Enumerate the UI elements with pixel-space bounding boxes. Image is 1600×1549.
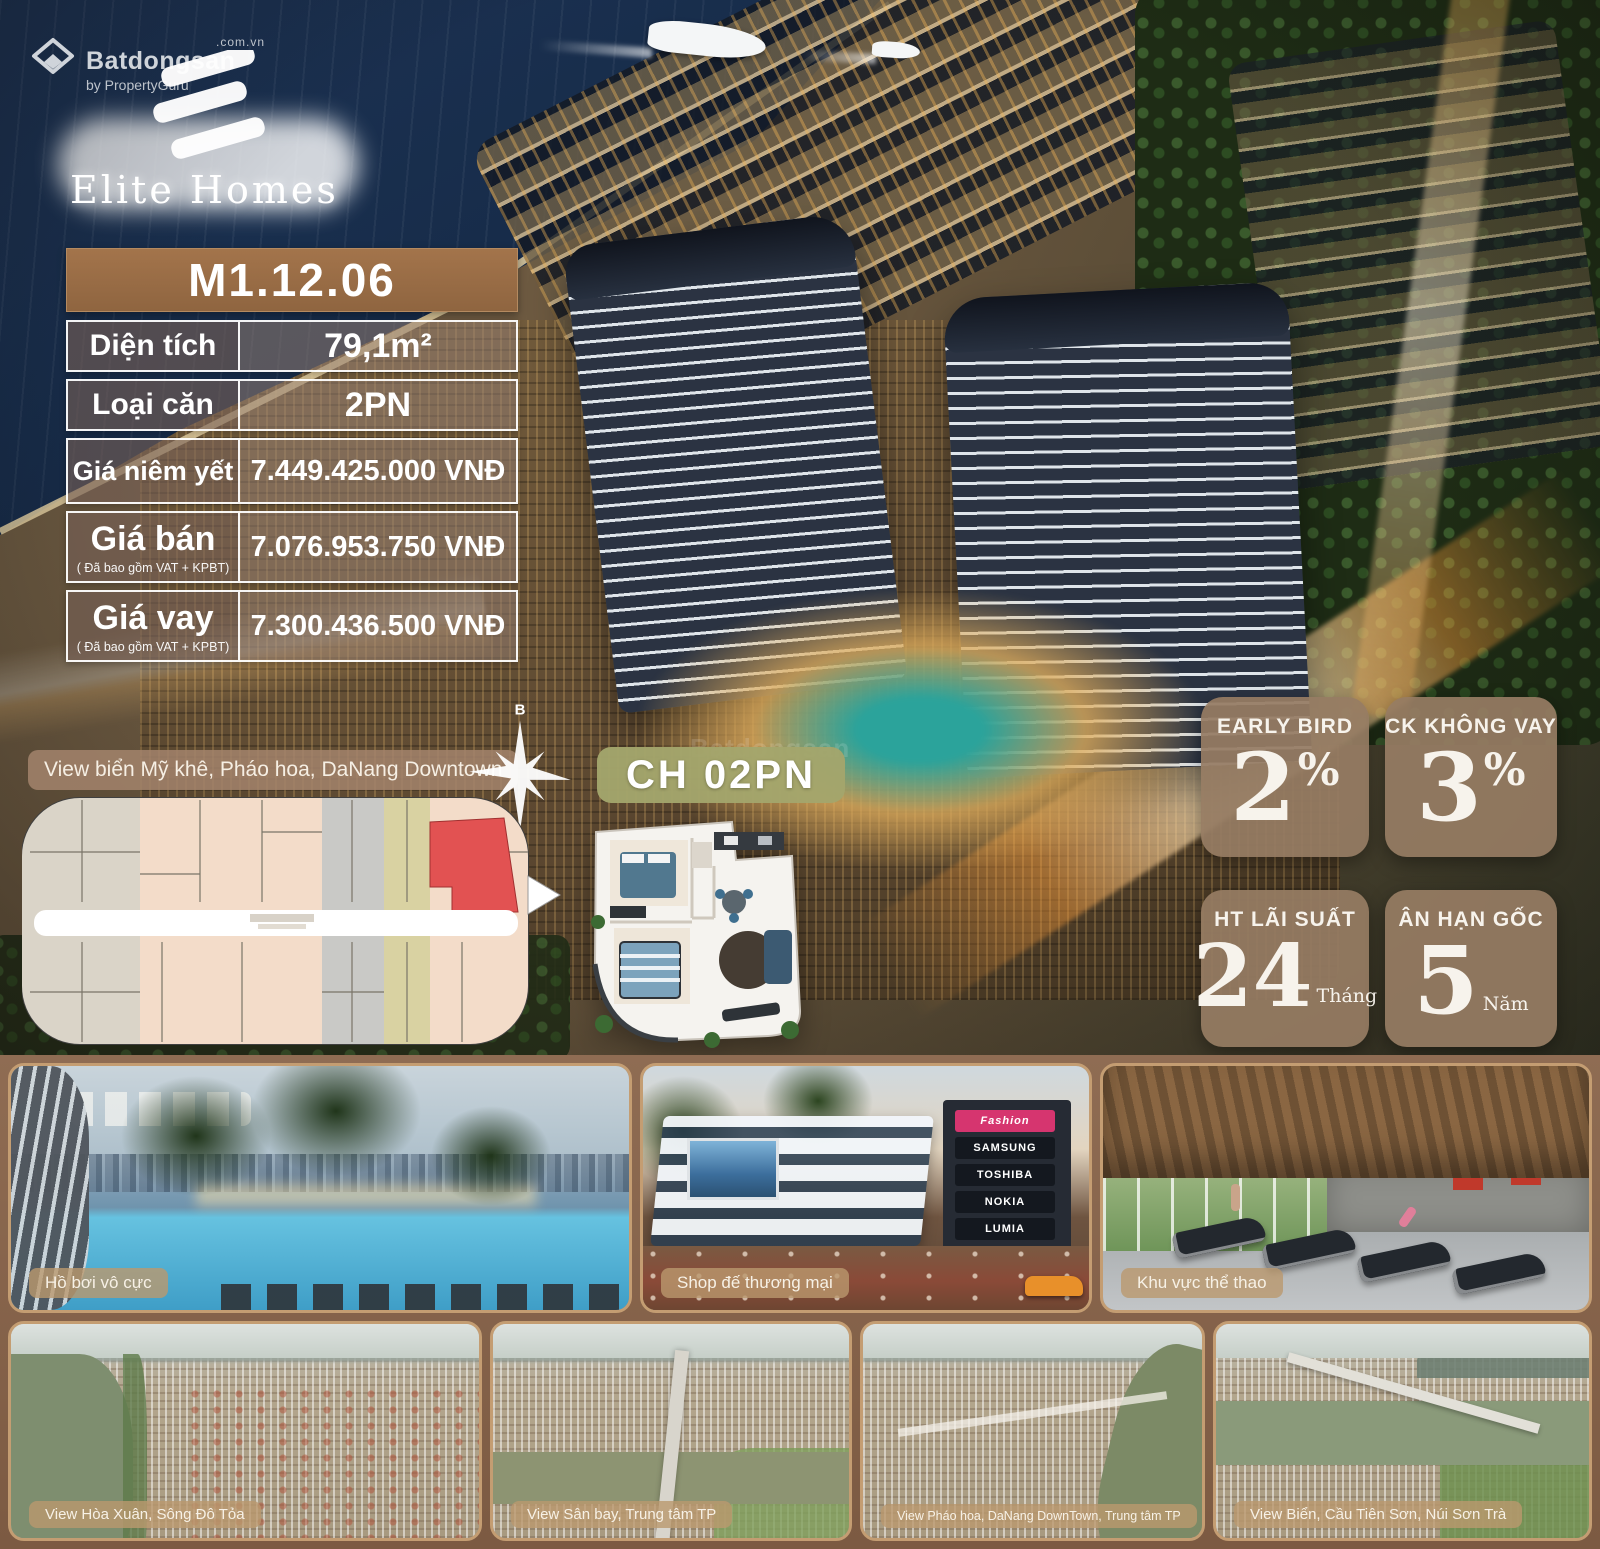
label-subtext: ( Đã bao gồm VAT + KPBT)	[77, 561, 230, 575]
arrow-to-unit-icon	[528, 876, 560, 914]
led-screen	[687, 1138, 779, 1200]
floor-plate-plan	[22, 792, 562, 1054]
pool-loungers	[221, 1284, 629, 1310]
promo-value: 24 Tháng	[1193, 934, 1377, 1020]
wood-slat-ceiling	[1103, 1066, 1589, 1178]
label-text: Loại căn	[92, 388, 214, 422]
brand-sign: Fashion	[955, 1110, 1055, 1132]
promo-number: 3	[1416, 741, 1481, 835]
real-estate-poster: Batdongsan .com.vn Batdongsan by Propert…	[0, 0, 1600, 1549]
photo-view-tien-son-bridge: View Biển, Cầu Tiên Sơn, Núi Sơn Trà	[1213, 1321, 1592, 1541]
elite-homes-mark-icon	[130, 50, 280, 170]
palm-tree	[121, 1076, 271, 1196]
view-note-pill: View biển Mỹ khê, Pháo hoa, DaNang Downt…	[28, 750, 518, 790]
promo-value: 3 %	[1416, 741, 1525, 835]
unit-type-text: CH 02PN	[626, 753, 816, 798]
person-running	[1231, 1184, 1240, 1211]
row-value: 7.076.953.750 VNĐ	[240, 513, 516, 581]
promo-value: 5 Năm	[1413, 934, 1528, 1028]
promo-number: 24	[1193, 934, 1313, 1020]
promo-early-bird: EARLY BIRD 2 %	[1201, 697, 1369, 857]
photo-gym: Khu vực thể thao	[1100, 1063, 1592, 1313]
orange-car	[1025, 1276, 1083, 1296]
photo-view-hoa-xuan: View Hòa Xuân, Sông Đô Tỏa	[8, 1321, 482, 1541]
brand-sign: TOSHIBA	[955, 1164, 1055, 1186]
unit-3d-floorplan	[562, 810, 812, 1050]
table-row-sale-price: Giá bán ( Đã bao gồm VAT + KPBT) 7.076.9…	[66, 511, 518, 583]
view-note-text: View biển Mỹ khê, Pháo hoa, DaNang Downt…	[44, 758, 502, 782]
table-row-list-price: Giá niêm yết 7.449.425.000 VNĐ	[66, 438, 518, 504]
brand-sign: SAMSUNG	[955, 1137, 1055, 1159]
row-label: Giá vay ( Đã bao gồm VAT + KPBT)	[68, 592, 240, 660]
gallery-row-1: Hồ bơi vô cực Fashion SAMSUNG TOSHIBA NO…	[8, 1063, 1592, 1313]
promo-no-loan-discount: CK KHÔNG VAY 3 %	[1385, 697, 1557, 857]
unit-strips	[22, 798, 528, 1044]
watermark-domain: .com.vn	[216, 36, 265, 48]
row-label: Diện tích	[68, 322, 240, 370]
table-row-type: Loại căn 2PN	[66, 379, 518, 431]
row-value: 7.300.436.500 VNĐ	[240, 592, 516, 660]
value-text: 2PN	[345, 386, 411, 425]
label-text: Diện tích	[90, 329, 217, 363]
sky-band	[863, 1324, 1202, 1358]
photo-caption: View Sân bay, Trung tâm TP	[511, 1501, 732, 1528]
sky-band	[1216, 1324, 1589, 1358]
row-label: Loại căn	[68, 381, 240, 429]
photo-gallery: Hồ bơi vô cực Fashion SAMSUNG TOSHIBA NO…	[0, 1055, 1600, 1549]
palm-tree	[431, 1106, 551, 1206]
photo-caption: Khu vực thể thao	[1121, 1268, 1283, 1298]
table-row-area: Diện tích 79,1m²	[66, 320, 518, 372]
photo-view-downtown: View Pháo hoa, DaNang DownTown, Trung tâ…	[860, 1321, 1205, 1541]
value-text: 79,1m²	[324, 327, 432, 366]
row-label: Giá niêm yết	[68, 440, 240, 502]
label-text: Giá niêm yết	[73, 456, 234, 487]
photo-retail-podium: Fashion SAMSUNG TOSHIBA NOKIA LUMIA Shop…	[640, 1063, 1092, 1313]
table-row-loan-price: Giá vay ( Đã bao gồm VAT + KPBT) 7.300.4…	[66, 590, 518, 662]
compass-north-label: B	[515, 702, 526, 719]
photo-caption: Shop đế thương mại	[661, 1268, 849, 1298]
developer-logo-text: Elite Homes	[70, 168, 339, 212]
photo-caption: Hồ bơi vô cực	[29, 1268, 168, 1298]
unit-info-table: M1.12.06 Diện tích 79,1m² Loại căn 2PN G…	[66, 248, 518, 669]
value-text: 7.300.436.500 VNĐ	[251, 610, 506, 643]
photo-view-airport: View Sân bay, Trung tâm TP	[490, 1321, 852, 1541]
photo-caption: View Biển, Cầu Tiên Sơn, Núi Sơn Trà	[1234, 1501, 1522, 1528]
unit-type-tag: CH 02PN	[597, 747, 845, 803]
promo-unit: Tháng	[1317, 987, 1378, 1006]
label-subtext: ( Đã bao gồm VAT + KPBT)	[77, 640, 230, 654]
promo-value: 2 %	[1230, 741, 1339, 835]
row-value: 7.449.425.000 VNĐ	[240, 440, 516, 502]
bedroom-2	[614, 928, 690, 1004]
river	[1216, 1401, 1589, 1465]
corridor	[34, 910, 518, 936]
developer-logo: Elite Homes	[70, 60, 370, 220]
promo-number: 5	[1413, 934, 1478, 1028]
value-text: 7.076.953.750 VNĐ	[251, 531, 506, 564]
row-value: 2PN	[240, 381, 516, 429]
promo-number: 2	[1230, 741, 1295, 835]
promo-interest-support: HT LÃI SUẤT 24 Tháng	[1201, 890, 1369, 1047]
brand-sign: LUMIA	[955, 1218, 1055, 1240]
photo-caption: View Hòa Xuân, Sông Đô Tỏa	[29, 1501, 261, 1528]
sky-band	[11, 1324, 479, 1358]
gallery-row-2: View Hòa Xuân, Sông Đô Tỏa View Sân bay,…	[8, 1321, 1592, 1541]
promo-unit: %	[1484, 749, 1526, 793]
brand-sign-stack: Fashion SAMSUNG TOSHIBA NOKIA LUMIA	[955, 1110, 1055, 1240]
value-text: 7.449.425.000 VNĐ	[251, 455, 506, 488]
brand-sign: NOKIA	[955, 1191, 1055, 1213]
label-text: Giá bán	[91, 520, 216, 559]
promo-grace-period: ÂN HẠN GỐC 5 Năm	[1385, 890, 1557, 1047]
unit-code: M1.12.06	[66, 248, 518, 312]
label-text: Giá vay	[93, 599, 214, 638]
photo-infinity-pool: Hồ bơi vô cực	[8, 1063, 632, 1313]
promo-unit: Năm	[1483, 995, 1529, 1014]
red-accent	[1453, 1178, 1483, 1190]
row-value: 79,1m²	[240, 322, 516, 370]
photo-caption: View Pháo hoa, DaNang DownTown, Trung tâ…	[881, 1504, 1197, 1528]
row-label: Giá bán ( Đã bao gồm VAT + KPBT)	[68, 513, 240, 581]
promo-unit: %	[1298, 749, 1340, 793]
sky-band	[493, 1324, 849, 1358]
